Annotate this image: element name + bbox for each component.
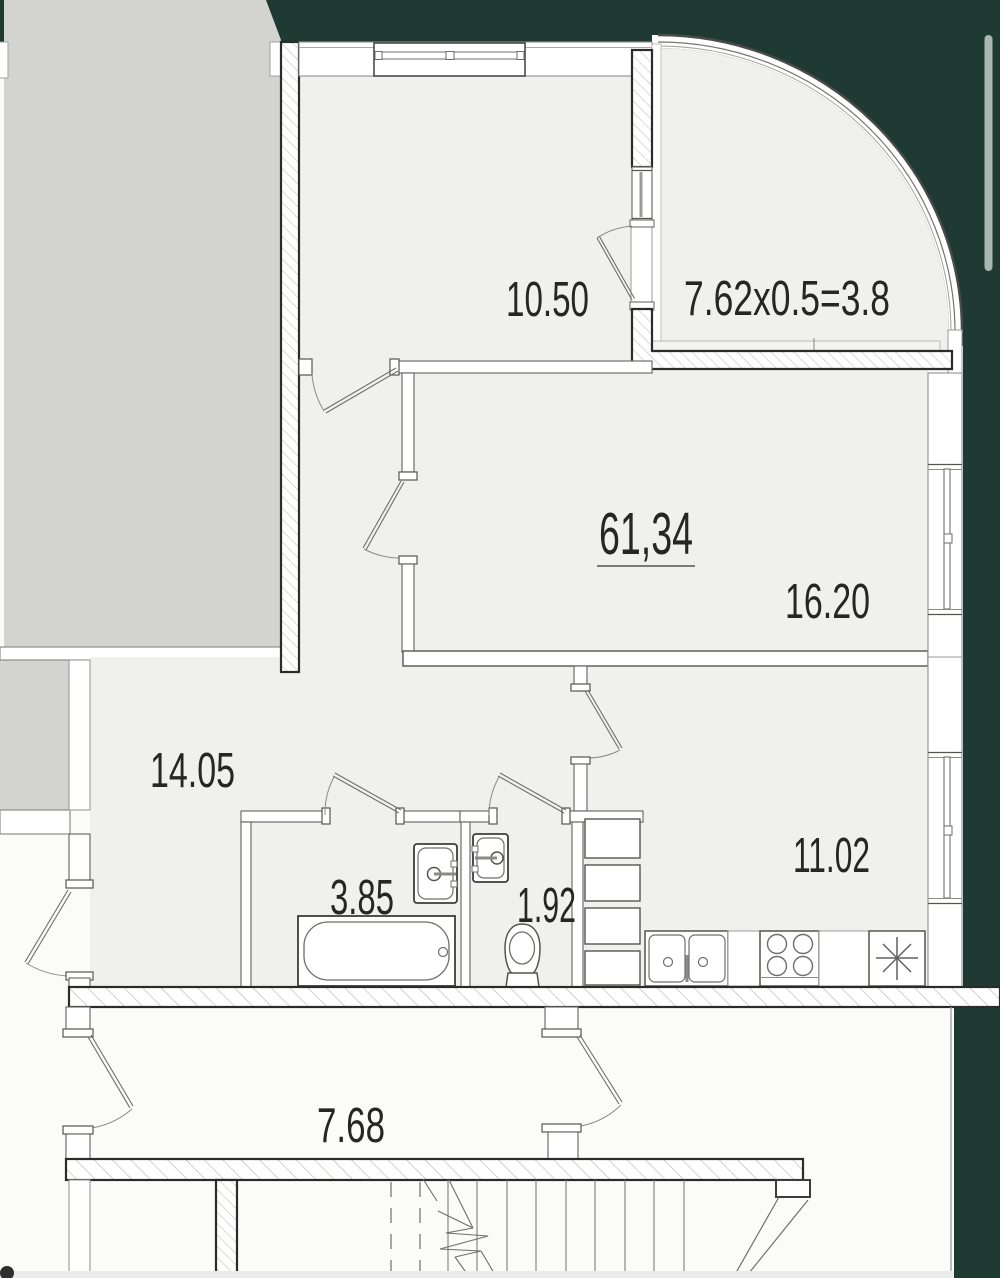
svg-text:7.62x0.5=3.8: 7.62x0.5=3.8 <box>684 272 890 326</box>
svg-text:14.05: 14.05 <box>150 744 235 798</box>
svg-text:10.50: 10.50 <box>506 273 589 327</box>
svg-text:61,34: 61,34 <box>599 501 693 567</box>
svg-text:16.20: 16.20 <box>785 575 870 629</box>
svg-text:3.85: 3.85 <box>330 871 394 925</box>
svg-text:11.02: 11.02 <box>793 829 870 883</box>
svg-text:7.68: 7.68 <box>317 1099 385 1153</box>
svg-text:1.92: 1.92 <box>517 879 576 933</box>
